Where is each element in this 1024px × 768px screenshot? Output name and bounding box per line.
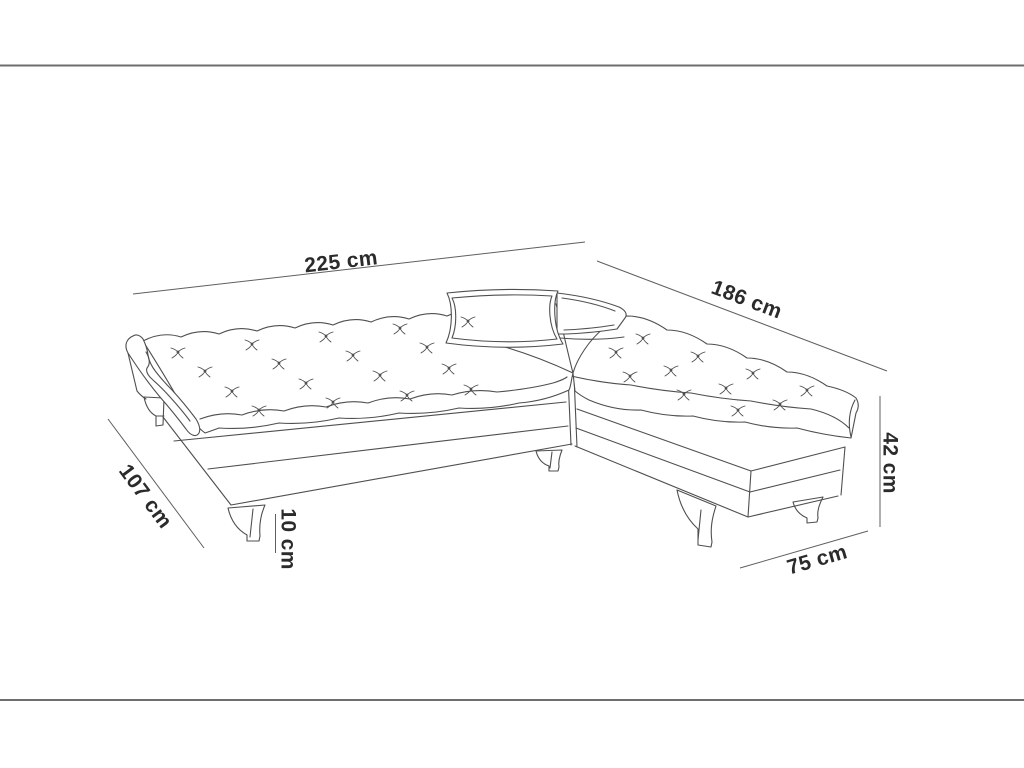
dimension-label-chaise-side-length: 186 cm — [708, 276, 785, 324]
corner-foot — [536, 450, 562, 471]
product-dimension-diagram: 225 cm 186 cm 107 cm 10 cm 42 cm 75 cm — [0, 0, 1024, 768]
dimension-label-total-width: 225 cm — [303, 246, 379, 277]
dimension-label-seat-depth: 107 cm — [114, 460, 176, 533]
sofa-line-art — [126, 289, 858, 547]
dimension-label-overall-height: 42 cm — [879, 432, 902, 494]
sofa-dimension-drawing: 225 cm 186 cm 107 cm 10 cm 42 cm 75 cm — [0, 0, 1024, 768]
chaise-mattress — [571, 316, 858, 438]
front-left-leg — [228, 505, 265, 541]
dimension-label-leg-height: 10 cm — [277, 508, 300, 570]
back-left-foot — [144, 397, 164, 426]
chaise-front-leg — [677, 490, 716, 547]
